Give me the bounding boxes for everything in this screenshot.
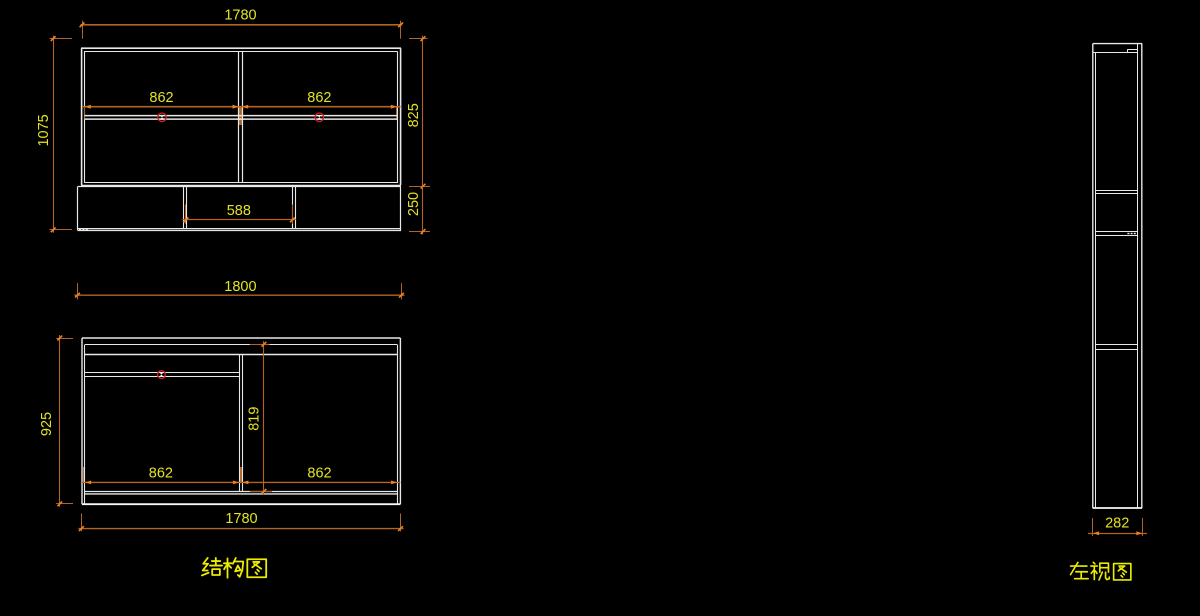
svg-text:862: 862 [149,465,173,481]
svg-text:1780: 1780 [224,8,256,24]
svg-text:1800: 1800 [224,279,256,295]
svg-text:862: 862 [149,90,173,106]
svg-text:925: 925 [39,412,55,436]
svg-text:588: 588 [227,203,251,219]
svg-text:825: 825 [406,103,422,127]
svg-text:250: 250 [406,192,422,216]
svg-text:1075: 1075 [36,114,52,146]
svg-text:1780: 1780 [225,511,257,527]
svg-text:862: 862 [307,90,331,106]
svg-text:282: 282 [1105,516,1129,532]
svg-text:862: 862 [307,465,331,481]
svg-text:819: 819 [246,407,262,431]
